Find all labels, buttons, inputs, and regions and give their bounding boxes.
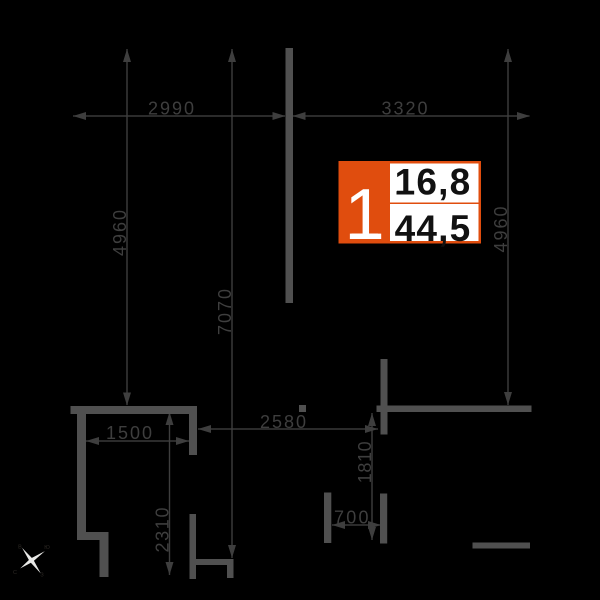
svg-text:1810: 1810	[355, 441, 375, 483]
svg-text:2990: 2990	[148, 98, 194, 118]
svg-text:7070: 7070	[215, 289, 235, 335]
svg-text:1500: 1500	[106, 423, 152, 443]
svg-text:2580: 2580	[260, 412, 306, 432]
svg-text:16,8: 16,8	[395, 162, 472, 203]
svg-text:2310: 2310	[153, 508, 173, 553]
svg-text:4960: 4960	[110, 210, 130, 256]
svg-text:700: 700	[334, 508, 369, 528]
svg-text:1: 1	[344, 174, 384, 255]
svg-text:С: С	[13, 570, 17, 576]
svg-text:В: В	[18, 545, 22, 551]
svg-text:Ю: Ю	[44, 545, 50, 551]
svg-text:44,5: 44,5	[395, 208, 472, 249]
svg-text:4960: 4960	[491, 207, 511, 253]
svg-text:3320: 3320	[382, 98, 428, 118]
